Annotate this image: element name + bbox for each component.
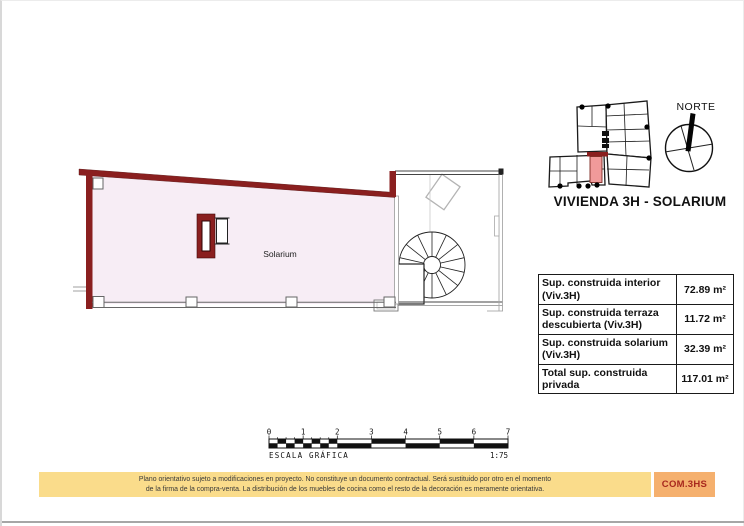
stair-core	[602, 131, 609, 148]
right-top-wall	[390, 171, 397, 197]
page-edge-line	[2, 521, 744, 523]
area-label: Sup. construida interior (Viv.3H)	[539, 275, 677, 304]
scale-tick-label: 1	[301, 428, 306, 437]
area-label: Sup. construida solarium (Viv.3H)	[539, 335, 677, 364]
area-value: 117.01 m²	[677, 365, 733, 394]
table-row: Total sup. construida privada 117.01 m²	[539, 364, 733, 394]
corner-closet	[397, 264, 424, 304]
left-wall	[86, 171, 93, 309]
disclaimer-line: de la firma de la compra-venta. La distr…	[146, 485, 544, 494]
scale-tick-label: 4	[403, 428, 408, 437]
north-needle-icon	[686, 113, 696, 152]
area-value: 72.89 m²	[677, 275, 733, 304]
area-value: 32.39 m²	[677, 335, 733, 364]
left-wall-ticks	[73, 287, 86, 291]
table-row: Sup. construida solarium (Viv.3H) 32.39 …	[539, 334, 733, 364]
locator-highlight-unit	[590, 157, 602, 183]
disclaimer-bar: Plano orientativo sujeto a modificacione…	[39, 472, 651, 497]
locator-title: VIVIENDA 3H - SOLARIUM	[530, 194, 744, 209]
north-compass: NORTE	[654, 96, 734, 184]
chimney-block	[197, 214, 215, 258]
scale-tick-label: 2	[335, 428, 340, 437]
site-locator-map	[547, 94, 659, 194]
table-row: Sup. construida interior (Viv.3H) 72.89 …	[539, 275, 733, 304]
graphic-scale-bar: 0 1 2 3 4 5 6 7 ESCALA GRÁFICA 1:75	[262, 425, 518, 461]
wall-pilaster	[495, 216, 500, 236]
scale-ratio: 1:75	[490, 451, 508, 460]
scale-tick-label: 0	[267, 428, 272, 437]
solarium-right-wall	[395, 196, 399, 304]
plan-sheet: Solarium	[0, 0, 744, 526]
disclaimer-line: Plano orientativo sujeto a modificacione…	[139, 475, 551, 484]
scale-tick-label: 3	[369, 428, 374, 437]
area-label: Total sup. construida privada	[539, 365, 677, 394]
table-row: Sup. construida terraza descubierta (Viv…	[539, 304, 733, 334]
water-heater	[215, 218, 230, 244]
plan-code-badge: COM.3HS	[654, 472, 715, 497]
scale-numbers: 0 1 2 3 4 5 6 7	[267, 428, 511, 437]
corner-tick	[499, 169, 504, 175]
solarium-label: Solarium	[263, 249, 297, 259]
scale-caption: ESCALA GRÁFICA	[269, 451, 349, 460]
scale-tick-label: 5	[437, 428, 442, 437]
north-label: NORTE	[676, 101, 715, 113]
locator-highlight-wall	[587, 152, 608, 157]
scale-tick-label: 6	[472, 428, 477, 437]
area-label: Sup. construida terraza descubierta (Viv…	[539, 305, 677, 334]
scale-tick-label: 7	[506, 428, 511, 437]
area-value: 11.72 m²	[677, 305, 733, 334]
floor-plan-drawing: Solarium	[62, 161, 522, 326]
areas-table: Sup. construida interior (Viv.3H) 72.89 …	[538, 274, 734, 394]
